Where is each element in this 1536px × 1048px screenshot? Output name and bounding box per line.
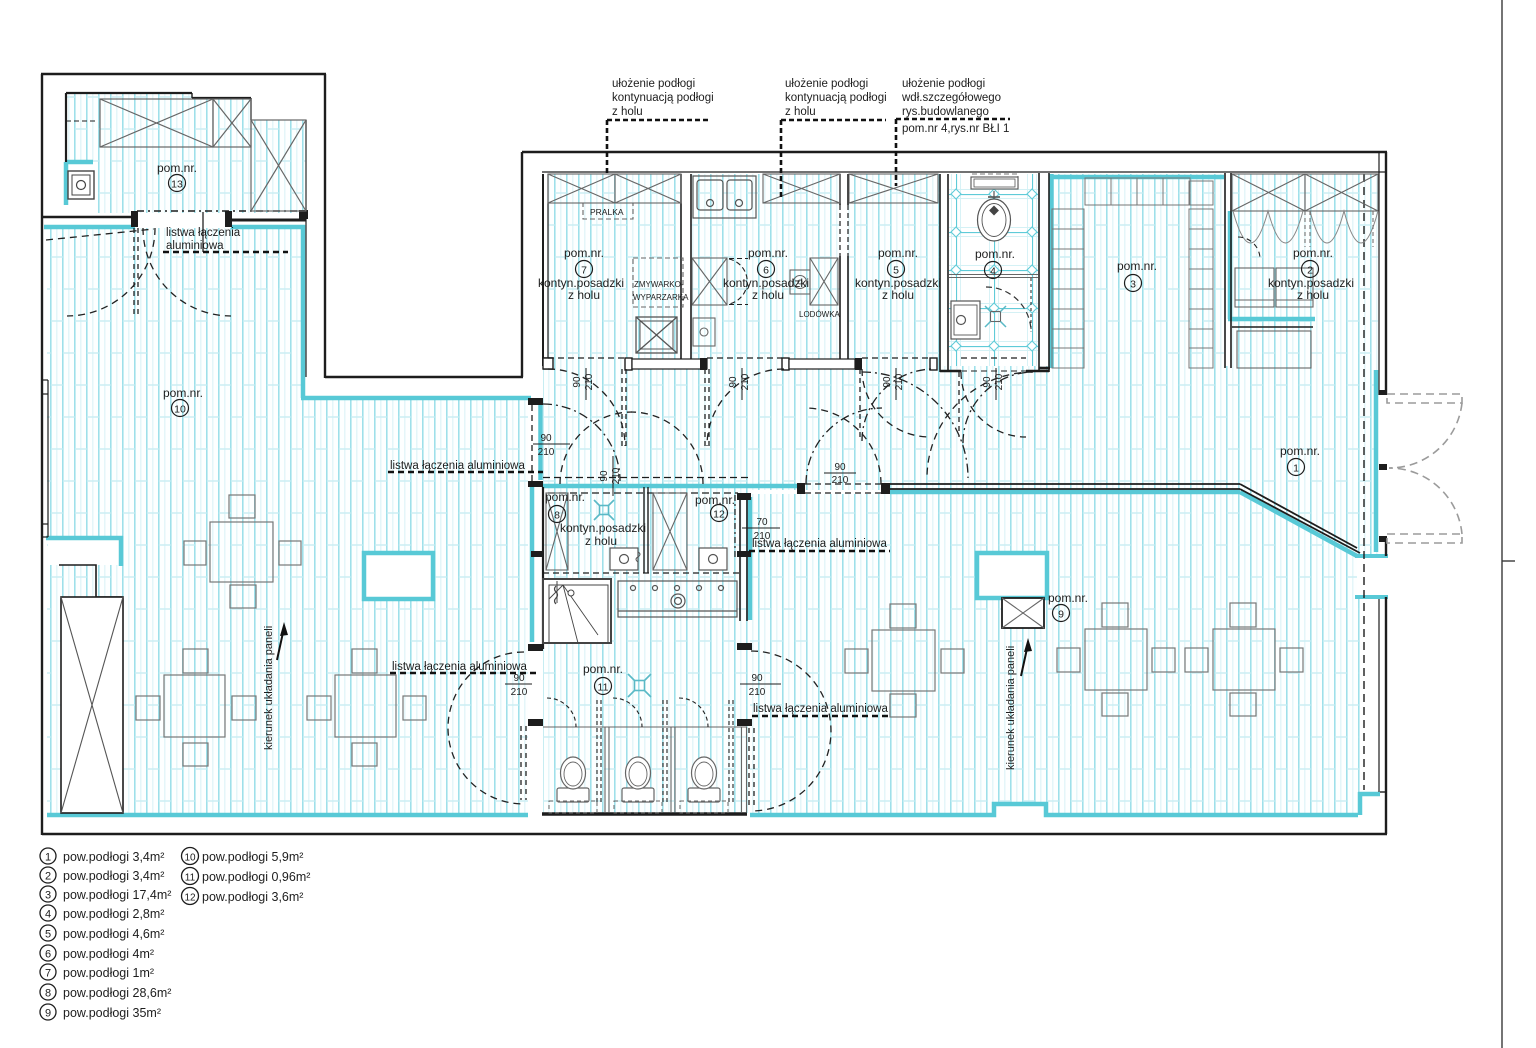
- svg-text:kontynuacją podłogi: kontynuacją podłogi: [612, 92, 714, 104]
- svg-text:ułożenie podłogi: ułożenie podłogi: [612, 78, 695, 90]
- svg-text:listwa łączenia aluminiowa: listwa łączenia aluminiowa: [752, 538, 887, 550]
- svg-text:90: 90: [982, 376, 993, 388]
- svg-text:90: 90: [834, 462, 846, 473]
- svg-text:pom.nr.: pom.nr.: [878, 246, 918, 260]
- svg-text:90: 90: [540, 433, 552, 444]
- svg-text:210: 210: [538, 447, 555, 458]
- svg-text:7: 7: [581, 265, 587, 277]
- svg-text:210: 210: [754, 531, 771, 542]
- svg-text:90: 90: [513, 673, 525, 684]
- svg-text:90: 90: [728, 376, 739, 388]
- svg-text:pow.podłogi 4,6m²: pow.podłogi 4,6m²: [63, 927, 164, 941]
- svg-text:ułożenie podłogi: ułożenie podłogi: [902, 78, 985, 90]
- svg-text:z holu: z holu: [612, 106, 643, 118]
- svg-text:pom.nr.: pom.nr.: [748, 246, 788, 260]
- svg-text:pom.nr.: pom.nr.: [583, 662, 623, 676]
- svg-text:z holu: z holu: [882, 288, 914, 302]
- svg-text:z holu: z holu: [585, 534, 617, 548]
- svg-text:pow.podłogi 4m²: pow.podłogi 4m²: [63, 947, 154, 961]
- svg-text:8: 8: [45, 988, 51, 1000]
- svg-text:pom.nr 4,rys.nr BŁI 1: pom.nr 4,rys.nr BŁI 1: [902, 123, 1009, 135]
- svg-text:z holu: z holu: [752, 288, 784, 302]
- svg-text:1: 1: [1293, 463, 1299, 475]
- svg-text:12: 12: [713, 509, 725, 521]
- svg-text:pow.podłogi 3,6m²: pow.podłogi 3,6m²: [202, 890, 303, 904]
- svg-text:3: 3: [45, 890, 51, 902]
- svg-text:pom.nr.: pom.nr.: [163, 386, 203, 400]
- svg-text:90: 90: [751, 673, 763, 684]
- svg-text:PRALKA: PRALKA: [590, 207, 624, 217]
- svg-text:pow.podłogi 0,96m²: pow.podłogi 0,96m²: [202, 870, 310, 884]
- svg-text:ułożenie podłogi: ułożenie podłogi: [785, 78, 868, 90]
- svg-text:pow.podłogi 28,6m²: pow.podłogi 28,6m²: [63, 986, 171, 1000]
- svg-text:5: 5: [893, 265, 899, 277]
- svg-text:z holu: z holu: [785, 106, 816, 118]
- svg-text:pom.nr.: pom.nr.: [1293, 246, 1333, 260]
- svg-text:pom.nr.: pom.nr.: [545, 490, 585, 504]
- svg-text:z holu: z holu: [1297, 288, 1329, 302]
- svg-text:WYPARZARKA: WYPARZARKA: [633, 293, 689, 302]
- svg-text:listwa łączenia aluminiowa: listwa łączenia aluminiowa: [753, 703, 888, 715]
- svg-text:5: 5: [45, 929, 51, 941]
- svg-text:90: 90: [599, 470, 610, 482]
- svg-text:9: 9: [45, 1008, 51, 1020]
- svg-text:pow.podłogi 1m²: pow.podłogi 1m²: [63, 966, 154, 980]
- svg-text:aluminiowa: aluminiowa: [166, 240, 224, 252]
- svg-text:listwa łączenia aluminiowa: listwa łączenia aluminiowa: [390, 460, 525, 472]
- svg-text:pom.nr.: pom.nr.: [564, 246, 604, 260]
- svg-text:210: 210: [749, 687, 766, 698]
- svg-text:kontynuacją podłogi: kontynuacją podłogi: [785, 92, 887, 104]
- svg-text:6: 6: [45, 949, 51, 961]
- svg-text:LODÓWKA: LODÓWKA: [799, 310, 841, 319]
- svg-text:kierunek układania paneli: kierunek układania paneli: [263, 626, 275, 750]
- svg-text:pow.podłogi 2,8m²: pow.podłogi 2,8m²: [63, 907, 164, 921]
- svg-text:pow.podłogi 5,9m²: pow.podłogi 5,9m²: [202, 850, 303, 864]
- svg-text:pow.podłogi 3,4m²: pow.podłogi 3,4m²: [63, 869, 164, 883]
- svg-text:pow.podłogi 17,4m²: pow.podłogi 17,4m²: [63, 888, 171, 902]
- svg-text:11: 11: [598, 682, 609, 694]
- svg-text:7: 7: [45, 968, 51, 980]
- svg-text:2: 2: [45, 871, 51, 883]
- svg-text:listwa łączenia aluminiowa: listwa łączenia aluminiowa: [392, 661, 527, 673]
- svg-text:1: 1: [45, 852, 51, 864]
- svg-text:12: 12: [184, 893, 196, 904]
- svg-text:pom.nr.: pom.nr.: [1048, 591, 1088, 605]
- svg-text:8: 8: [554, 510, 560, 522]
- svg-text:90: 90: [572, 376, 583, 388]
- svg-text:kierunek układania paneli: kierunek układania paneli: [1005, 646, 1017, 770]
- svg-text:z holu: z holu: [568, 288, 600, 302]
- svg-text:rys.budowlanego: rys.budowlanego: [902, 106, 989, 118]
- svg-text:3: 3: [1130, 279, 1136, 291]
- svg-text:4: 4: [45, 909, 51, 921]
- svg-text:wdł.szczegółowego: wdł.szczegółowego: [901, 92, 1001, 104]
- svg-text:90: 90: [882, 376, 893, 388]
- svg-text:2: 2: [1307, 265, 1313, 277]
- svg-text:11: 11: [185, 873, 196, 884]
- svg-text:210: 210: [832, 475, 849, 486]
- svg-text:pow.podłogi 35m²: pow.podłogi 35m²: [63, 1006, 161, 1020]
- svg-text:4: 4: [990, 266, 996, 278]
- svg-text:70: 70: [756, 517, 768, 528]
- svg-text:13: 13: [171, 179, 183, 191]
- svg-text:pom.nr.: pom.nr.: [1117, 259, 1157, 273]
- svg-text:pow.podłogi 3,4m²: pow.podłogi 3,4m²: [63, 850, 164, 864]
- svg-text:10: 10: [184, 853, 196, 864]
- svg-text:ZMYWARKO-: ZMYWARKO-: [634, 280, 684, 289]
- svg-text:pom.nr.: pom.nr.: [157, 161, 197, 175]
- svg-text:pom.nr.: pom.nr.: [975, 247, 1015, 261]
- svg-text:kontyn.posadzki: kontyn.posadzki: [560, 521, 646, 535]
- svg-text:9: 9: [1058, 609, 1064, 621]
- svg-text:6: 6: [763, 265, 769, 277]
- svg-text:pom.nr.: pom.nr.: [1280, 444, 1320, 458]
- svg-text:10: 10: [174, 404, 186, 416]
- svg-text:210: 210: [511, 687, 528, 698]
